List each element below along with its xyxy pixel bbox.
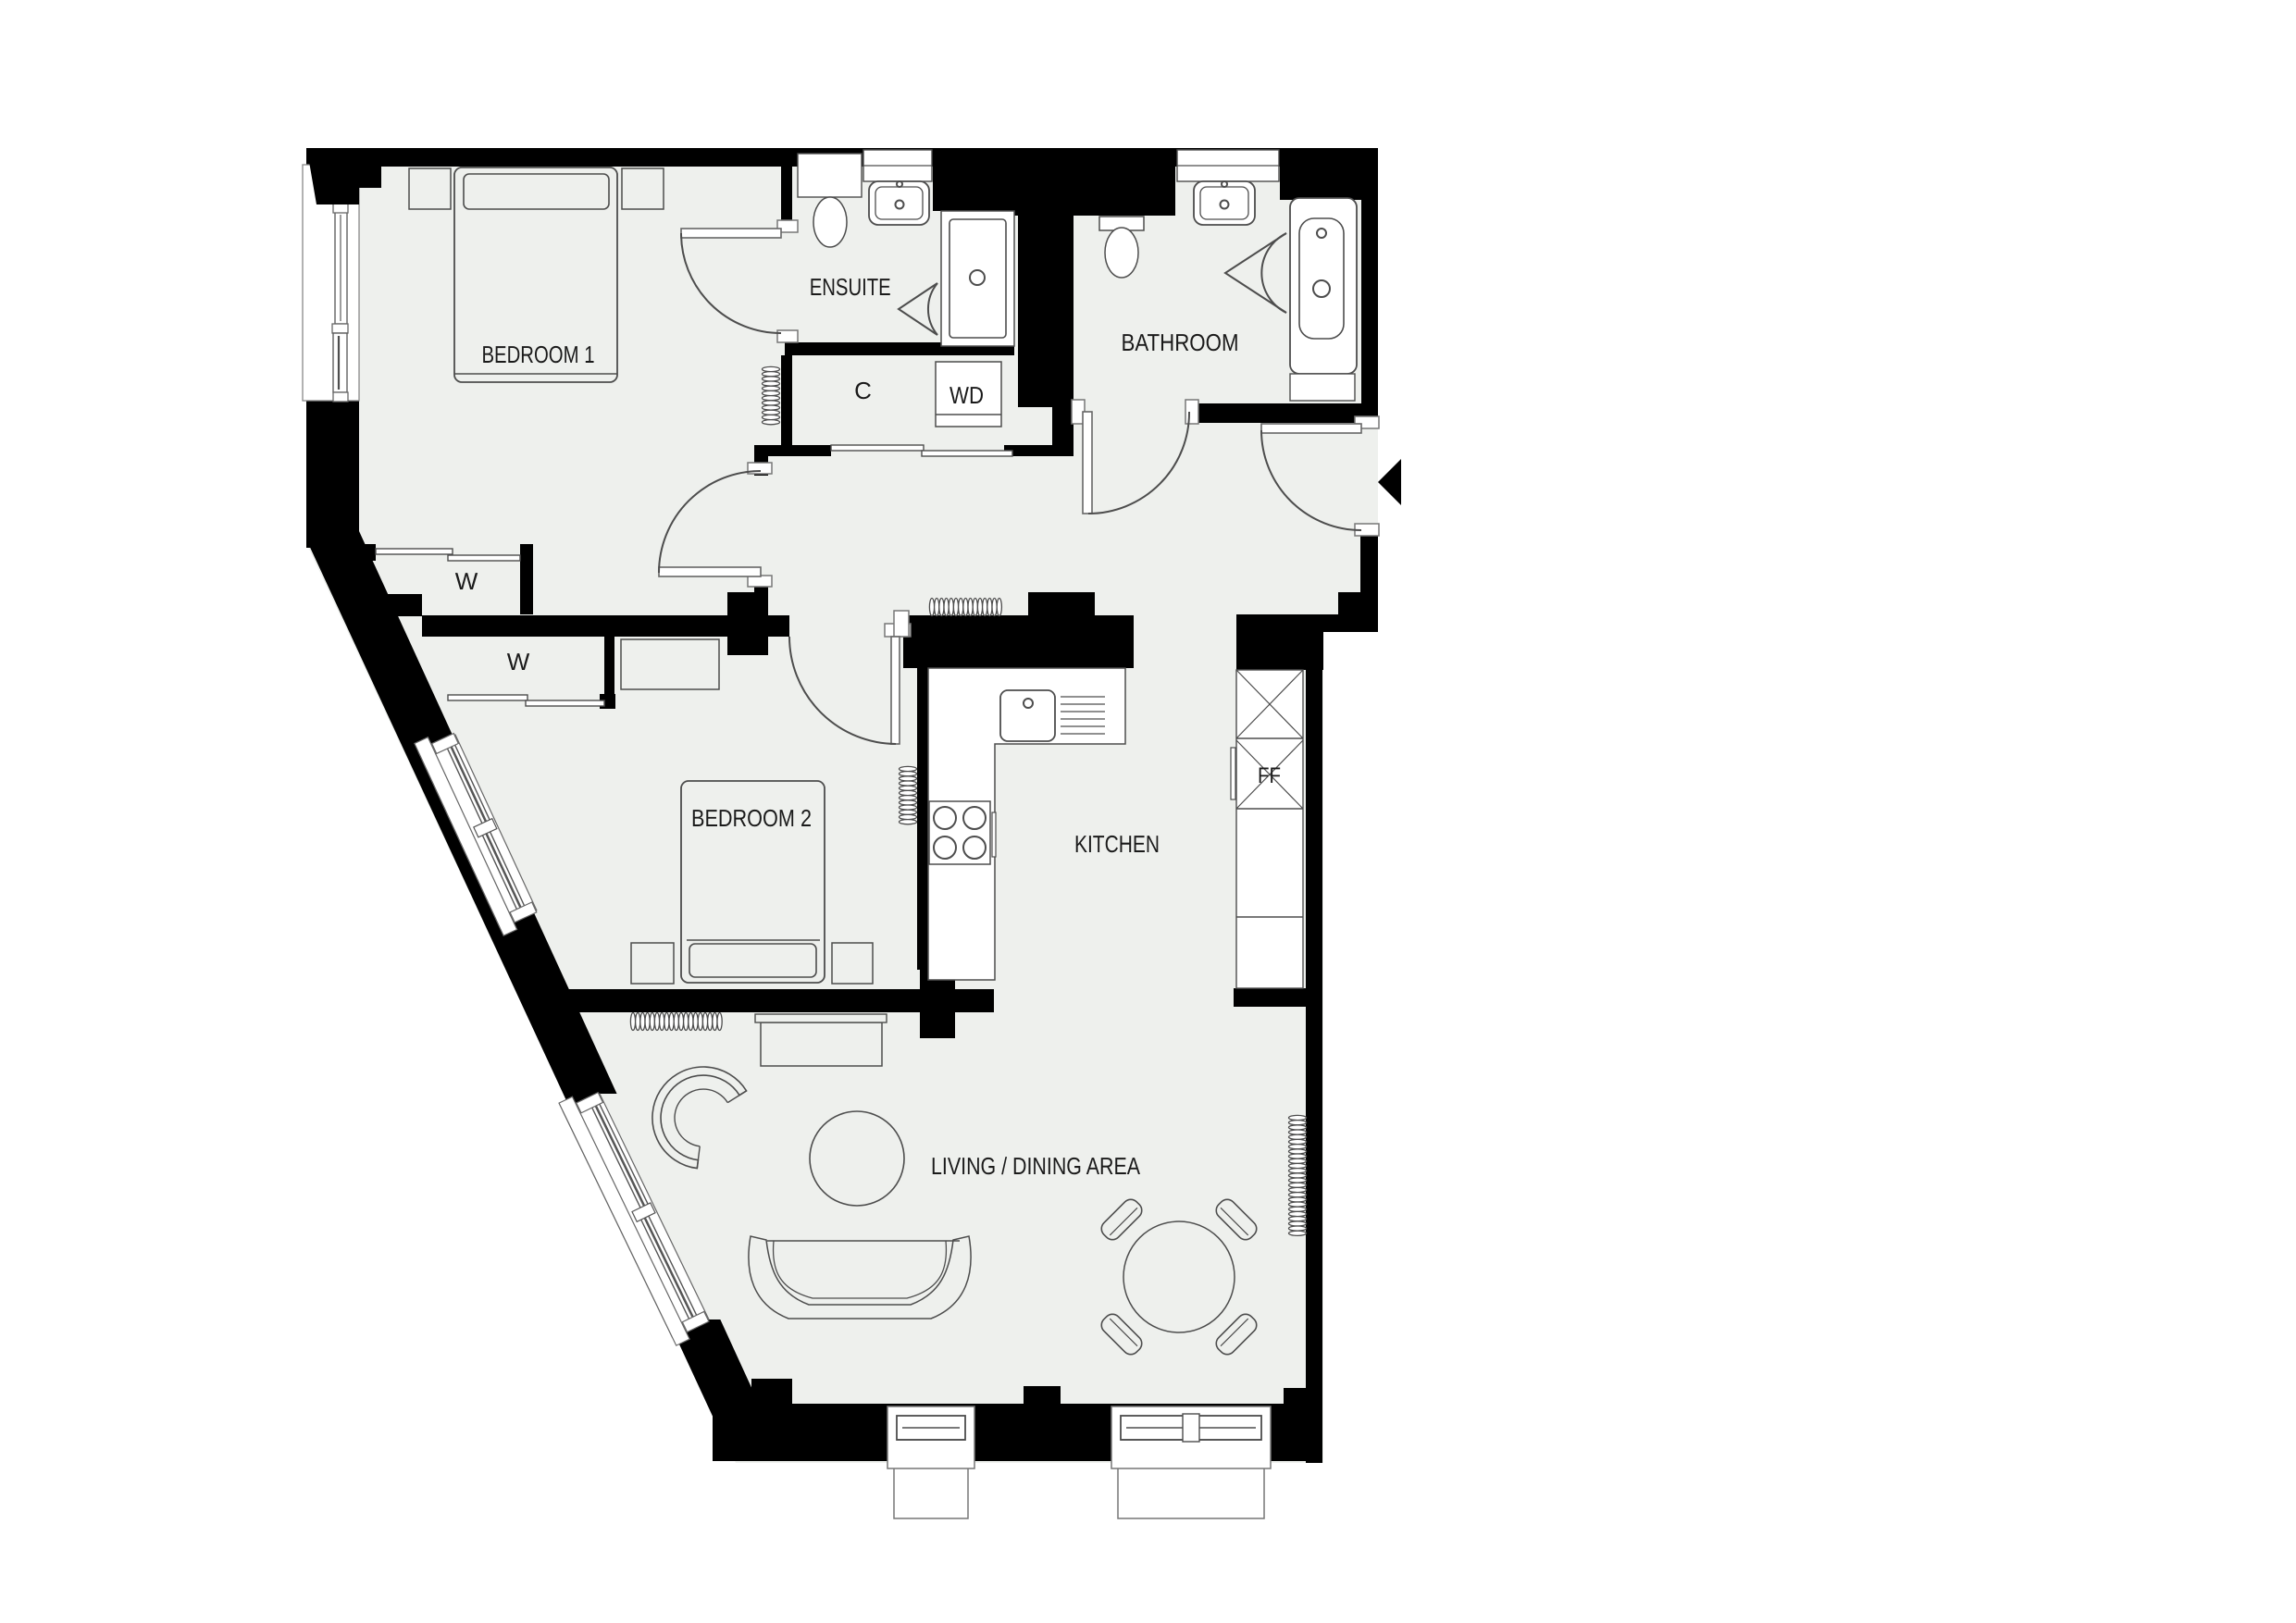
svg-text:WD: WD bbox=[949, 381, 984, 409]
svg-text:FF: FF bbox=[1258, 763, 1281, 788]
svg-text:W: W bbox=[455, 567, 478, 595]
svg-text:C: C bbox=[854, 377, 872, 404]
svg-text:ENSUITE: ENSUITE bbox=[810, 273, 891, 301]
svg-text:BATHROOM: BATHROOM bbox=[1122, 328, 1239, 356]
svg-text:LIVING / DINING AREA: LIVING / DINING AREA bbox=[931, 1152, 1141, 1180]
svg-text:BEDROOM 2: BEDROOM 2 bbox=[691, 804, 812, 832]
svg-text:BEDROOM 1: BEDROOM 1 bbox=[482, 341, 595, 368]
svg-text:W: W bbox=[507, 648, 530, 675]
svg-text:KITCHEN: KITCHEN bbox=[1074, 830, 1160, 858]
